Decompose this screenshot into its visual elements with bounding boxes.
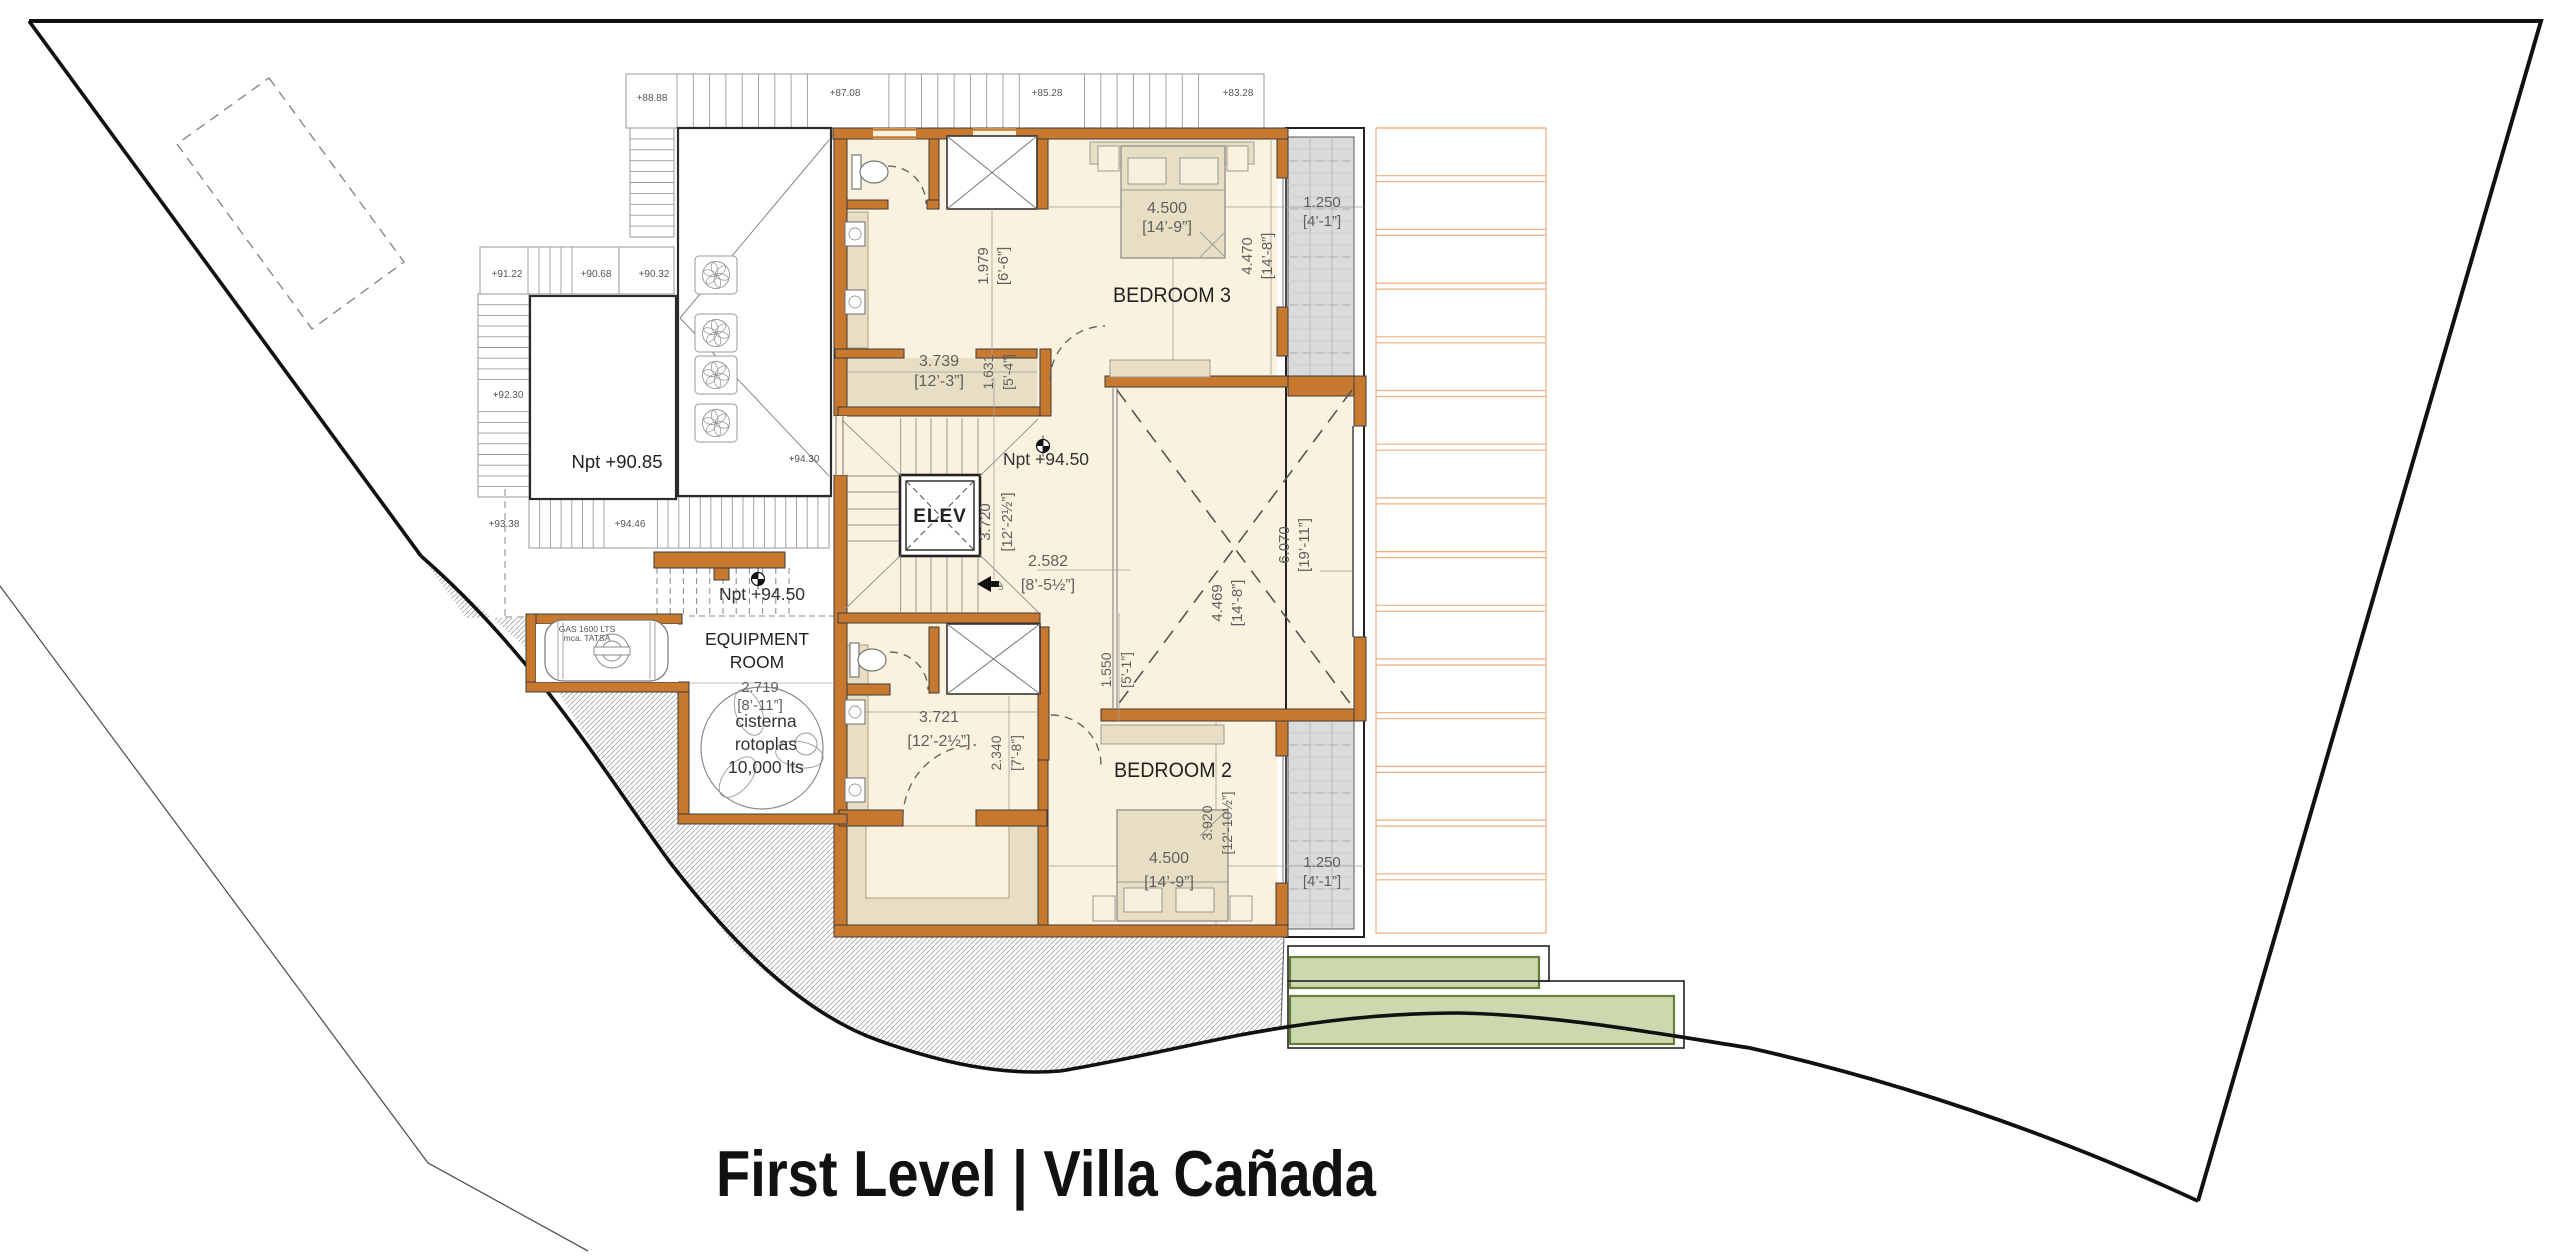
svg-text:4.470: 4.470 [1239, 237, 1256, 275]
svg-text:1.550: 1.550 [1098, 652, 1114, 687]
svg-text:+85.28: +85.28 [1032, 88, 1063, 99]
svg-text:UP: UP [999, 582, 1005, 590]
svg-text:[5’-1”]: [5’-1”] [1118, 652, 1134, 688]
svg-text:+94.46: +94.46 [615, 519, 646, 530]
svg-text:[12’-10½”]: [12’-10½”] [1219, 791, 1235, 854]
svg-text:[4’-1”]: [4’-1”] [1303, 213, 1341, 230]
svg-text:ROOM: ROOM [730, 652, 784, 672]
svg-text:1.631: 1.631 [980, 354, 996, 389]
svg-text:3.920: 3.920 [1199, 805, 1215, 840]
svg-text:2.582: 2.582 [1028, 553, 1068, 570]
svg-text:BEDROOM 2: BEDROOM 2 [1114, 759, 1232, 782]
svg-text:EQUIPMENT: EQUIPMENT [705, 629, 809, 649]
svg-text:ELEV: ELEV [913, 506, 967, 527]
svg-text:mca. TATSA: mca. TATSA [564, 633, 611, 643]
svg-text:+87.08: +87.08 [830, 88, 861, 99]
svg-text:3.721: 3.721 [919, 709, 959, 726]
svg-text:[12’-2½”]: [12’-2½”] [999, 492, 1016, 551]
svg-text:1.250: 1.250 [1303, 194, 1341, 211]
svg-text:[4’-1”]: [4’-1”] [1303, 873, 1341, 890]
svg-text:2.340: 2.340 [988, 735, 1004, 770]
svg-text:+92.30: +92.30 [493, 390, 524, 401]
svg-text:10,000 lts: 10,000 lts [728, 757, 804, 777]
svg-text:+88.88: +88.88 [637, 93, 668, 104]
svg-text:6.070: 6.070 [1276, 526, 1293, 564]
svg-text:1.250: 1.250 [1303, 854, 1341, 871]
svg-text:Npt +94.50: Npt +94.50 [1003, 449, 1089, 469]
svg-text:4.500: 4.500 [1147, 200, 1187, 217]
svg-text:+83.28: +83.28 [1223, 88, 1254, 99]
svg-text:4.500: 4.500 [1149, 850, 1189, 867]
svg-text:[5’-4”]: [5’-4”] [1000, 354, 1016, 390]
svg-text:3.720: 3.720 [977, 503, 994, 541]
svg-text:cisterna: cisterna [735, 711, 797, 731]
svg-text:+94.30: +94.30 [789, 454, 820, 465]
svg-text:+91.22: +91.22 [492, 269, 523, 280]
svg-text:+90.32: +90.32 [639, 269, 670, 280]
svg-text:+90.68: +90.68 [581, 269, 612, 280]
svg-text:[7’-8”]: [7’-8”] [1008, 735, 1024, 771]
svg-text:First Level | Villa Cañada: First Level | Villa Cañada [716, 1137, 1377, 1211]
svg-text:[12’-2½”]: [12’-2½”] [907, 733, 970, 750]
svg-text:[14’-9”]: [14’-9”] [1142, 219, 1192, 236]
svg-text:1.979: 1.979 [975, 247, 992, 285]
svg-text:[14’-9”]: [14’-9”] [1144, 874, 1194, 891]
svg-text:[14’-8”]: [14’-8”] [1259, 233, 1276, 280]
svg-text:Npt +90.85: Npt +90.85 [571, 451, 662, 472]
svg-text:BEDROOM 3: BEDROOM 3 [1113, 284, 1231, 307]
svg-text:[19’-11”]: [19’-11”] [1296, 518, 1313, 572]
svg-text:2.719: 2.719 [741, 679, 779, 696]
svg-text:[6’-6”]: [6’-6”] [995, 247, 1012, 285]
svg-text:+93.38: +93.38 [489, 519, 520, 530]
svg-text:4.469: 4.469 [1209, 584, 1226, 622]
svg-text:rotoplas: rotoplas [735, 734, 798, 754]
svg-text:[8’-5½”]: [8’-5½”] [1021, 577, 1075, 594]
svg-text:[12’-3”]: [12’-3”] [914, 373, 964, 390]
svg-text:[14’-8”]: [14’-8”] [1229, 580, 1246, 627]
svg-text:3.739: 3.739 [919, 353, 959, 370]
svg-text:Npt +94.50: Npt +94.50 [719, 584, 805, 604]
